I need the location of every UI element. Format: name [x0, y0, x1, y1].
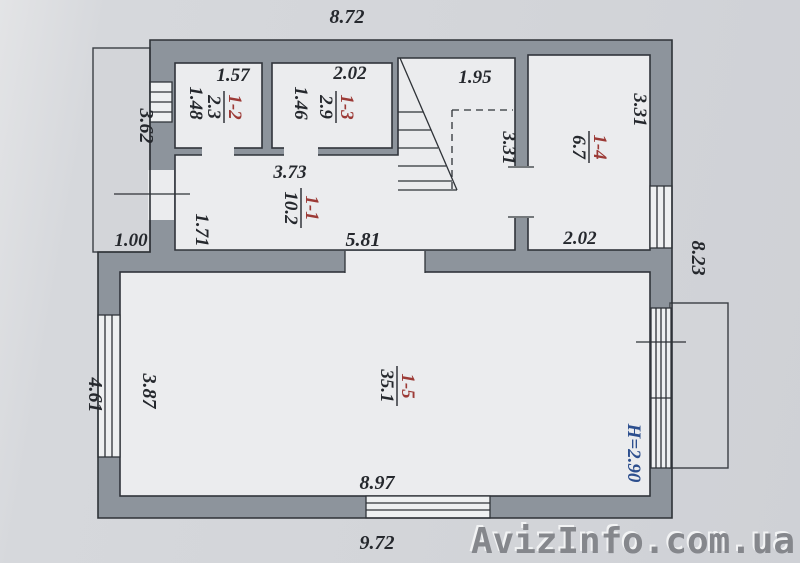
- watermark-text: AvizInfo.com.ua: [471, 521, 795, 562]
- floor-plan-scan: 8.72 1.57 2.02 1.95 3.73 1.00 5.81 2.02 …: [0, 0, 800, 563]
- door-room-1-2: [202, 146, 234, 157]
- window-bottom: [366, 496, 490, 518]
- rooms: [120, 55, 650, 496]
- room-area: 2.9: [315, 94, 336, 119]
- balcony-outline: [670, 303, 728, 468]
- dim-stairs-height: 3.31: [498, 130, 519, 164]
- watermark: AvizInfo.com.ua AvizInfo.com.ua: [469, 519, 795, 562]
- dim-r12-width: 1.57: [216, 65, 251, 86]
- room-area: 10.2: [280, 191, 301, 225]
- dim-left-height: 4.61: [84, 377, 106, 413]
- ceiling-height-label: H=2.90: [623, 423, 644, 483]
- floor-plan-drawing: 8.72 1.57 2.02 1.95 3.73 1.00 5.81 2.02 …: [0, 0, 800, 563]
- window-right-upper: [650, 186, 672, 248]
- entry-door-opening: [148, 170, 174, 220]
- dim-right-height: 8.23: [687, 241, 709, 276]
- dim-stairs-width: 1.95: [458, 67, 492, 88]
- room-area: 35.1: [376, 368, 397, 402]
- dim-r14-height: 3.31: [629, 92, 650, 126]
- room-label-1-3: 1-3 2.9: [315, 91, 357, 123]
- dim-r14-width: 2.02: [562, 228, 597, 249]
- room-number: 1-2: [224, 94, 245, 120]
- room-label-1-4: 1-4 6.7: [568, 131, 610, 163]
- dim-porch-height: 3.62: [135, 108, 157, 144]
- room-number: 1-1: [301, 195, 322, 220]
- room-label-1-2: 1-2 2.3: [203, 91, 245, 123]
- door-room-1-5: [345, 251, 425, 273]
- room-number: 1-3: [336, 94, 357, 119]
- door-room-1-4: [512, 166, 531, 218]
- room-area: 6.7: [568, 135, 589, 160]
- door-room-1-3: [284, 146, 318, 157]
- dim-r15-height: 3.87: [138, 373, 160, 410]
- dim-hall-height: 1.71: [191, 213, 212, 246]
- dim-hall-width: 3.73: [272, 162, 306, 183]
- dim-hall-bottom: 5.81: [346, 229, 381, 251]
- room-area: 2.3: [203, 94, 224, 119]
- dim-r15-width: 8.97: [360, 472, 396, 494]
- entry-porch-outline: [93, 48, 150, 252]
- room-number: 1-5: [397, 373, 418, 399]
- dim-r13-height: 1.46: [290, 86, 311, 120]
- dim-porch-width: 1.00: [114, 230, 148, 251]
- dim-bottom-width: 9.72: [360, 532, 395, 554]
- divider-wall-left-ext: [98, 252, 153, 272]
- room-number: 1-4: [589, 134, 610, 159]
- dim-top-width: 8.72: [330, 6, 365, 28]
- dim-r13-width: 2.02: [332, 63, 367, 84]
- dim-r12-height: 1.48: [185, 86, 206, 120]
